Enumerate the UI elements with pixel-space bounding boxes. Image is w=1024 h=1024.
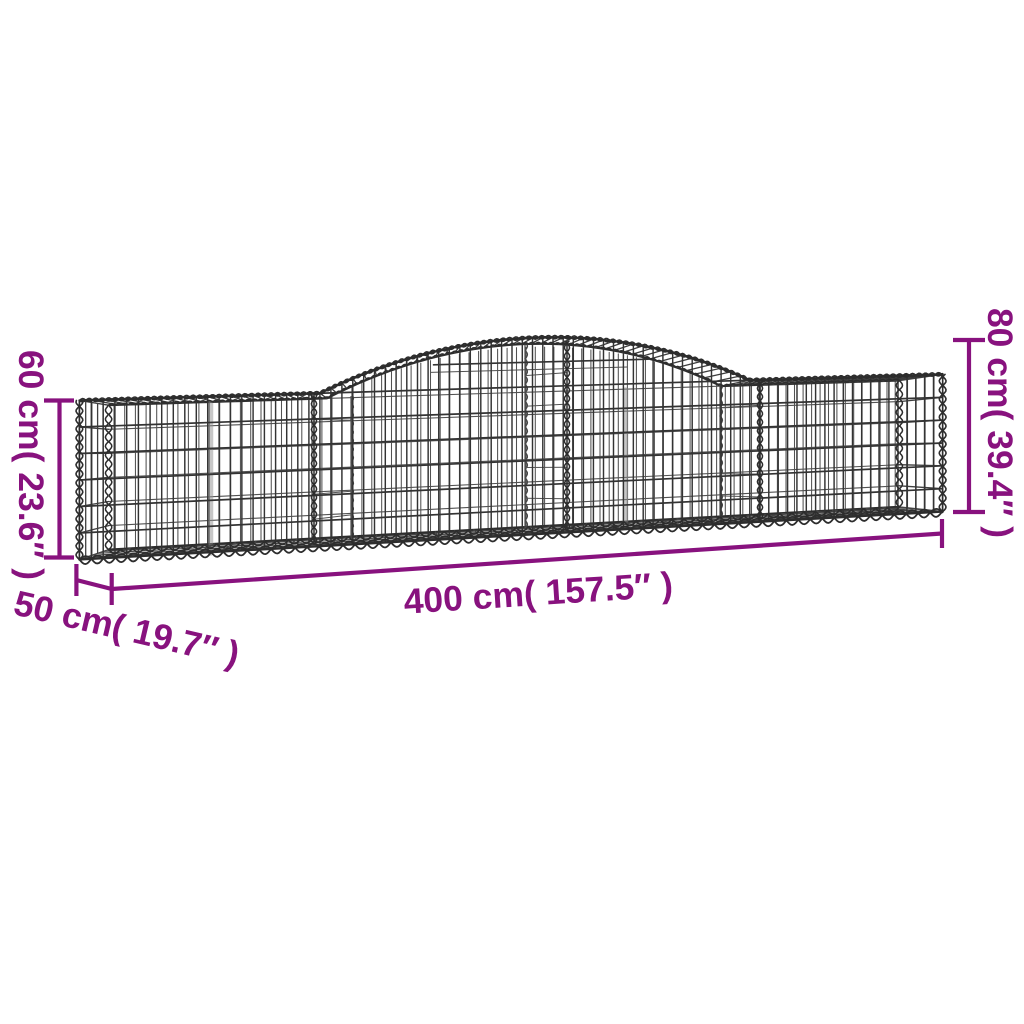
svg-text:60 cm( 23.6″ ): 60 cm( 23.6″ ) — [11, 350, 51, 580]
svg-text:80 cm( 39.4″ ): 80 cm( 39.4″ ) — [980, 308, 1020, 538]
svg-text:400 cm( 157.5″ ): 400 cm( 157.5″ ) — [402, 564, 674, 621]
svg-text:50 cm( 19.7″ ): 50 cm( 19.7″ ) — [10, 583, 243, 674]
